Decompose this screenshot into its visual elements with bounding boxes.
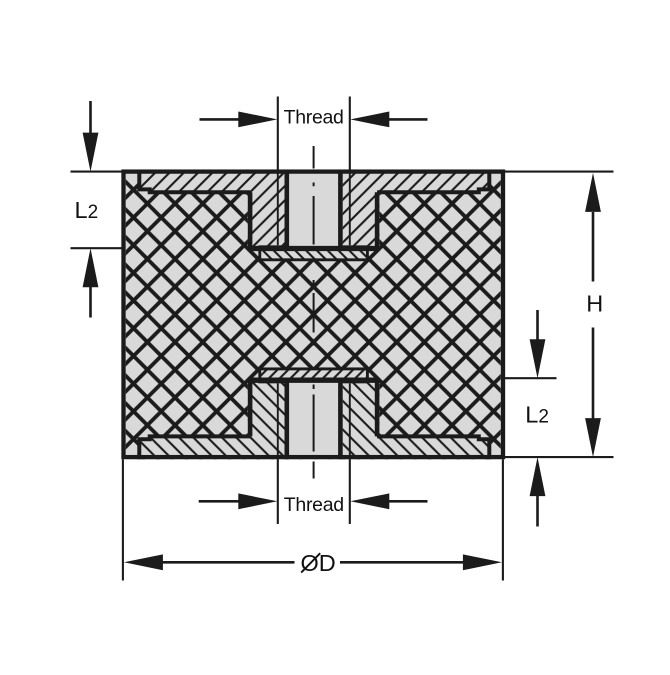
svg-text:Thread: Thread [284, 107, 344, 129]
svg-text:H: H [586, 291, 603, 317]
svg-text:OD: OD [301, 550, 336, 576]
svg-text:Thread: Thread [284, 494, 344, 516]
